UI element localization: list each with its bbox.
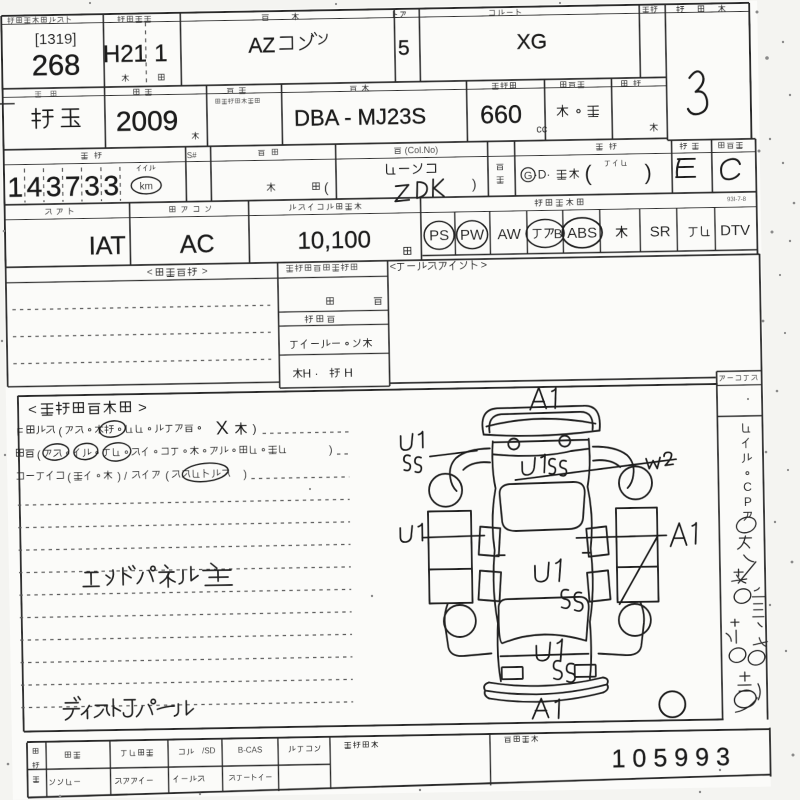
svg-text:SR: SR: [650, 223, 671, 240]
svg-text:H ·: H ·: [302, 366, 318, 380]
svg-text:X: X: [215, 418, 229, 440]
svg-text:(: (: [584, 161, 592, 186]
svg-text:>: >: [481, 259, 488, 271]
svg-text:(: (: [324, 179, 329, 195]
svg-text:3: 3: [46, 171, 62, 202]
svg-text:) /: ) /: [117, 471, 128, 483]
svg-text:660: 660: [480, 101, 522, 130]
svg-text:P: P: [744, 495, 752, 509]
svg-text:S#: S#: [187, 151, 197, 160]
svg-text:>: >: [202, 266, 208, 277]
svg-text:ABS: ABS: [567, 225, 597, 243]
svg-text:C: C: [743, 480, 752, 494]
svg-text:PW: PW: [460, 226, 485, 243]
svg-text:F: F: [16, 427, 23, 439]
svg-text:<: <: [28, 401, 37, 418]
svg-text:AW: AW: [497, 226, 522, 243]
svg-text:): ): [644, 160, 652, 185]
svg-text:<: <: [147, 267, 153, 278]
svg-text:AZ: AZ: [248, 34, 275, 57]
svg-text:): ): [329, 444, 333, 456]
svg-text:B-CAS: B-CAS: [238, 745, 263, 754]
svg-text:DBA - MJ23S: DBA - MJ23S: [294, 104, 426, 131]
svg-text:XG: XG: [516, 30, 547, 54]
svg-text:DTV: DTV: [720, 222, 750, 240]
svg-text:[1319]: [1319]: [35, 31, 77, 49]
svg-text:<: <: [390, 261, 397, 273]
svg-text:G: G: [524, 170, 533, 182]
svg-text:5: 5: [398, 37, 410, 60]
svg-text:/SD: /SD: [202, 746, 216, 755]
svg-text:3: 3: [103, 170, 119, 201]
svg-text:(: (: [58, 426, 62, 438]
svg-text:(: (: [67, 472, 71, 484]
svg-text:7: 7: [65, 171, 81, 202]
svg-text:IAT: IAT: [89, 232, 127, 261]
svg-text:(: (: [165, 470, 169, 482]
svg-text:268: 268: [32, 50, 81, 83]
svg-text:>: >: [138, 399, 147, 416]
svg-text:1: 1: [154, 40, 168, 67]
svg-text:H21: H21: [103, 40, 147, 68]
svg-text:cc: cc: [536, 123, 548, 135]
svg-text:(: (: [37, 449, 41, 461]
svg-text:AC: AC: [180, 230, 215, 259]
svg-text:10,100: 10,100: [297, 226, 371, 254]
svg-text:93I-7-8: 93I-7-8: [727, 197, 747, 203]
svg-text:4: 4: [26, 171, 42, 202]
svg-text:): ): [243, 469, 247, 481]
svg-text:): ): [252, 422, 256, 436]
svg-text:): ): [472, 176, 477, 192]
svg-text:3: 3: [84, 170, 100, 201]
svg-text:2009: 2009: [116, 105, 179, 137]
svg-text:PS: PS: [429, 227, 449, 244]
svg-text:H: H: [344, 366, 353, 380]
svg-text:105993: 105993: [611, 743, 737, 773]
svg-text:(Col.No): (Col.No): [405, 145, 439, 156]
svg-text:1: 1: [7, 172, 23, 203]
svg-text:·D·: ·D·: [534, 167, 551, 181]
svg-text:km: km: [139, 181, 153, 192]
